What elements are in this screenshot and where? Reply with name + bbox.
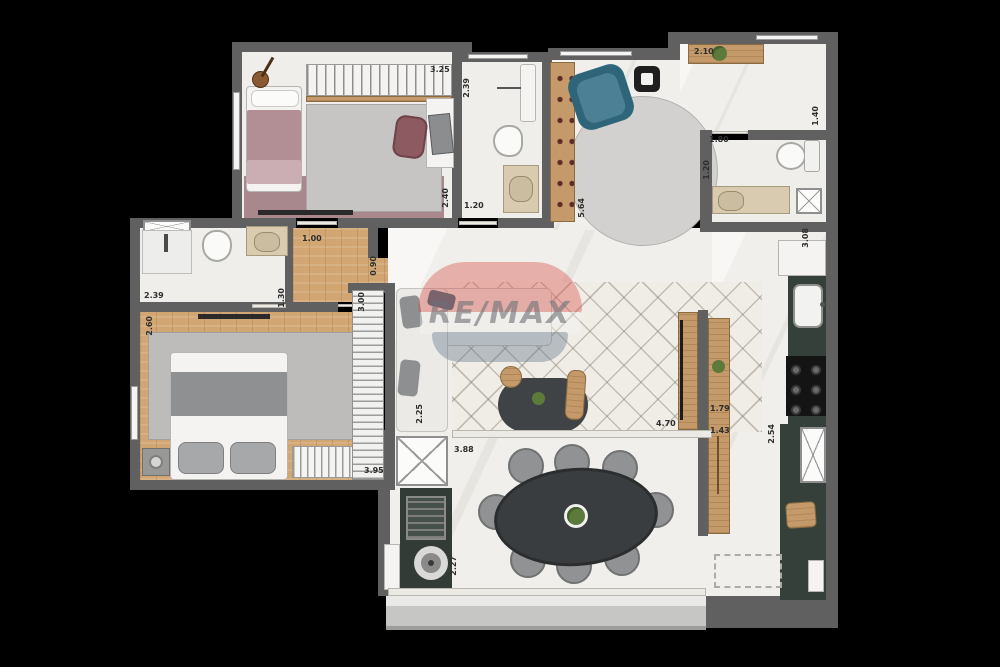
- bedroom2-window: [131, 386, 138, 440]
- bathroom3-toilet: [202, 230, 232, 262]
- island-handle: [717, 436, 719, 494]
- round-side-table: [500, 366, 522, 388]
- bathroom1-toilet: [493, 125, 523, 157]
- grill-rack: [406, 496, 446, 540]
- dim-label: 3.25: [430, 66, 450, 74]
- kitchen-sink: [793, 284, 823, 328]
- bathroom2-top-wall-b: [748, 130, 826, 140]
- wood-bench: [564, 369, 586, 420]
- bottom-right-wall: [700, 596, 838, 628]
- dim-label: 3.95: [364, 467, 384, 475]
- bedroom2-top-wall: [130, 302, 338, 312]
- bathroom1-shower-column: [520, 64, 536, 122]
- hall-living-wall: [368, 228, 378, 258]
- dim-label: 1.43: [710, 427, 730, 435]
- island-back-wall: [698, 310, 708, 536]
- bathroom2-shaft: [796, 188, 822, 214]
- bedroom1-top-wall: [232, 42, 472, 52]
- dim-label: 2.39: [463, 78, 471, 98]
- bedroom1-door: [297, 221, 337, 225]
- floor-plan-canvas: 3.25 2.39 2.40 1.20 5.64 2.10 1.40 1.80 …: [0, 0, 1000, 667]
- dim-label: 2.40: [442, 188, 450, 208]
- bedroom1-monitor: [428, 113, 454, 155]
- shower-head: [164, 234, 168, 252]
- bathroom2-door: [712, 131, 748, 134]
- bathroom2-sink: [718, 191, 744, 211]
- bathroom2-left-wall: [700, 130, 712, 232]
- dim-label: 1.40: [812, 106, 820, 126]
- bedroom2-wardrobe: [352, 290, 384, 480]
- dim-label: 0.90: [370, 256, 378, 276]
- dim-label: 3.88: [454, 446, 474, 454]
- bedroom2-blanket: [171, 372, 287, 416]
- bathroom2-bottom-wall: [700, 222, 838, 232]
- bathroom1-window: [468, 54, 528, 59]
- tv-screen: [680, 320, 683, 420]
- living-dining-slider: [452, 430, 712, 438]
- sideboard-plant: [712, 46, 727, 61]
- bathroom1-door: [459, 221, 497, 225]
- right-outer-wall: [826, 32, 838, 600]
- cutting-board: [785, 501, 817, 529]
- bathroom2-toilet-bowl: [776, 142, 806, 170]
- bedroom2-bench: [292, 446, 360, 478]
- side-table-tray: [641, 73, 653, 85]
- appliance-slot: [714, 554, 782, 588]
- kitchen-shaft: [800, 427, 826, 483]
- dim-label: 1.20: [703, 160, 711, 180]
- dim-label: 1.30: [278, 288, 286, 308]
- coffee-table-plant: [532, 392, 545, 405]
- bedroom2-pillow-right: [230, 442, 276, 474]
- bedroom1-pillow: [251, 90, 299, 107]
- dim-label: 2.39: [144, 292, 164, 300]
- bedroom1-bed-throw: [247, 160, 301, 184]
- sofa-pillow-gray2: [397, 359, 421, 397]
- left-outer-wall: [130, 218, 140, 490]
- bathroom1-faucet: [497, 87, 521, 89]
- dining-slider-track: [388, 588, 706, 596]
- bedroom1-chair: [391, 114, 429, 160]
- bedroom1-window: [233, 92, 240, 170]
- dim-label: 1.00: [302, 235, 322, 243]
- dim-label: 2.25: [416, 404, 424, 424]
- bathroom2-toilet-tank: [804, 140, 820, 172]
- dim-label: 5.64: [578, 198, 586, 218]
- bathroom3-sink: [254, 232, 280, 252]
- dim-label: 1.79: [710, 405, 730, 413]
- dim-label: 2.27: [450, 556, 458, 576]
- dim-label: 2.54: [768, 424, 776, 444]
- sofa-pillow-gray1: [399, 295, 423, 329]
- entry-window: [756, 35, 818, 40]
- island-plant: [712, 360, 725, 373]
- dim-label: 3.08: [802, 228, 810, 248]
- dim-label: 1.20: [464, 202, 484, 210]
- dining-centerpiece-plant: [567, 507, 585, 525]
- row-bottom-wall-c: [498, 218, 554, 228]
- kitchen-bottom-panel: [808, 560, 824, 592]
- kitchen-faucet: [820, 302, 825, 307]
- living-top-window: [560, 51, 632, 56]
- dim-label: 1.80: [709, 136, 729, 144]
- wok-burner-center: [428, 560, 434, 566]
- bathroom1-sink: [509, 176, 533, 202]
- bedroom2-pillow-left: [178, 442, 224, 474]
- dim-label: 3.00: [358, 292, 366, 312]
- row-bottom-wall-b: [338, 218, 458, 228]
- kitchen-stove: [786, 356, 826, 416]
- bedroom2-tv: [198, 314, 270, 319]
- gourmet-shaft: [396, 436, 448, 486]
- dim-label: 2.10: [694, 48, 714, 56]
- gourmet-side-panel: [384, 544, 400, 590]
- dim-label: 2.60: [146, 316, 154, 336]
- dim-label: 4.70: [656, 420, 676, 428]
- bedroom2-bottom-wall: [130, 480, 390, 490]
- bedroom1-tv: [258, 210, 353, 215]
- nightstand-lamp: [149, 455, 163, 469]
- balcony-slab: [386, 596, 706, 630]
